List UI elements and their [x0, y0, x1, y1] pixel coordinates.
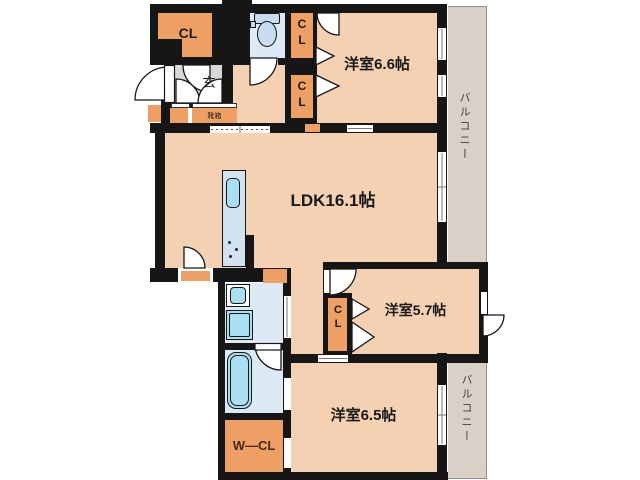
wall-accent: [170, 108, 188, 123]
door-threshold: [181, 271, 210, 281]
floor-plan: CL CL CL 玄 靴箱 洋室6.6帖 LDK16.1帖 洋室5.7帖 CL …: [0, 0, 640, 480]
sliding-door-room66: [347, 125, 373, 132]
shoe-box-label: 靴箱: [192, 111, 237, 121]
wall: [150, 123, 447, 133]
sliding-door-ldk: [210, 126, 270, 133]
entrance-door-icon: [135, 67, 168, 100]
room-57-label: 洋室5.7帖: [352, 300, 479, 320]
ldk-label: LDK16.1帖: [253, 186, 413, 211]
wall: [222, 57, 233, 103]
wall: [246, 235, 254, 268]
hallway-area: [233, 65, 285, 123]
wall: [283, 354, 488, 363]
entrance-step: [171, 103, 190, 108]
wall: [218, 413, 290, 420]
closet-57-label: CL: [332, 304, 344, 332]
corridor-area: [291, 260, 323, 363]
stove-burners-icon: [227, 241, 241, 259]
wall-accent: [148, 105, 161, 122]
wall: [158, 57, 250, 65]
wall: [225, 343, 291, 350]
closet-top-left-area-ext: [182, 39, 212, 57]
toilet-bowl-icon: [257, 21, 277, 47]
sliding-door-washroom: [284, 296, 291, 338]
closet-middle-label: CL: [295, 79, 309, 111]
sliding-door-room65: [318, 355, 348, 362]
washbasin-bowl-icon: [230, 287, 246, 304]
balcony-bottom-label: バルコニー: [458, 374, 474, 444]
wall: [291, 58, 313, 75]
wall: [278, 58, 291, 65]
wall: [150, 4, 158, 65]
wall-accent: [305, 124, 320, 132]
wall: [158, 4, 212, 13]
bathtub-inner: [230, 355, 249, 406]
room-65-label: 洋室6.5帖: [290, 404, 437, 425]
window-room66-lower: [438, 75, 446, 97]
closet-upper-label: CL: [295, 17, 309, 49]
door-toilet-gap: [250, 58, 278, 64]
door-room57-balcony: [480, 291, 488, 315]
wall: [323, 262, 488, 269]
wall-accent: [263, 269, 287, 283]
door-room57-leaf: [323, 269, 331, 294]
door-walkin-closet: [284, 438, 291, 468]
toilet-handle-icon: [250, 21, 256, 28]
wall: [291, 4, 313, 13]
closet-top-left-label: CL: [170, 25, 206, 41]
entrance-step: [192, 103, 237, 108]
wall: [155, 123, 165, 282]
window-ldk: [438, 152, 446, 222]
kitchen-sink-icon: [226, 178, 240, 208]
walk-in-closet-label: W—CL: [225, 438, 283, 453]
room-66-label: 洋室6.6帖: [317, 53, 437, 74]
wall: [218, 472, 448, 480]
balcony-top-label: バルコニー: [456, 92, 472, 162]
wall: [245, 4, 250, 65]
window-room66-upper: [438, 28, 446, 60]
window-room65: [438, 385, 446, 445]
wall: [218, 270, 225, 480]
entrance-label: 玄: [196, 72, 222, 91]
washing-machine-inner: [229, 313, 250, 337]
